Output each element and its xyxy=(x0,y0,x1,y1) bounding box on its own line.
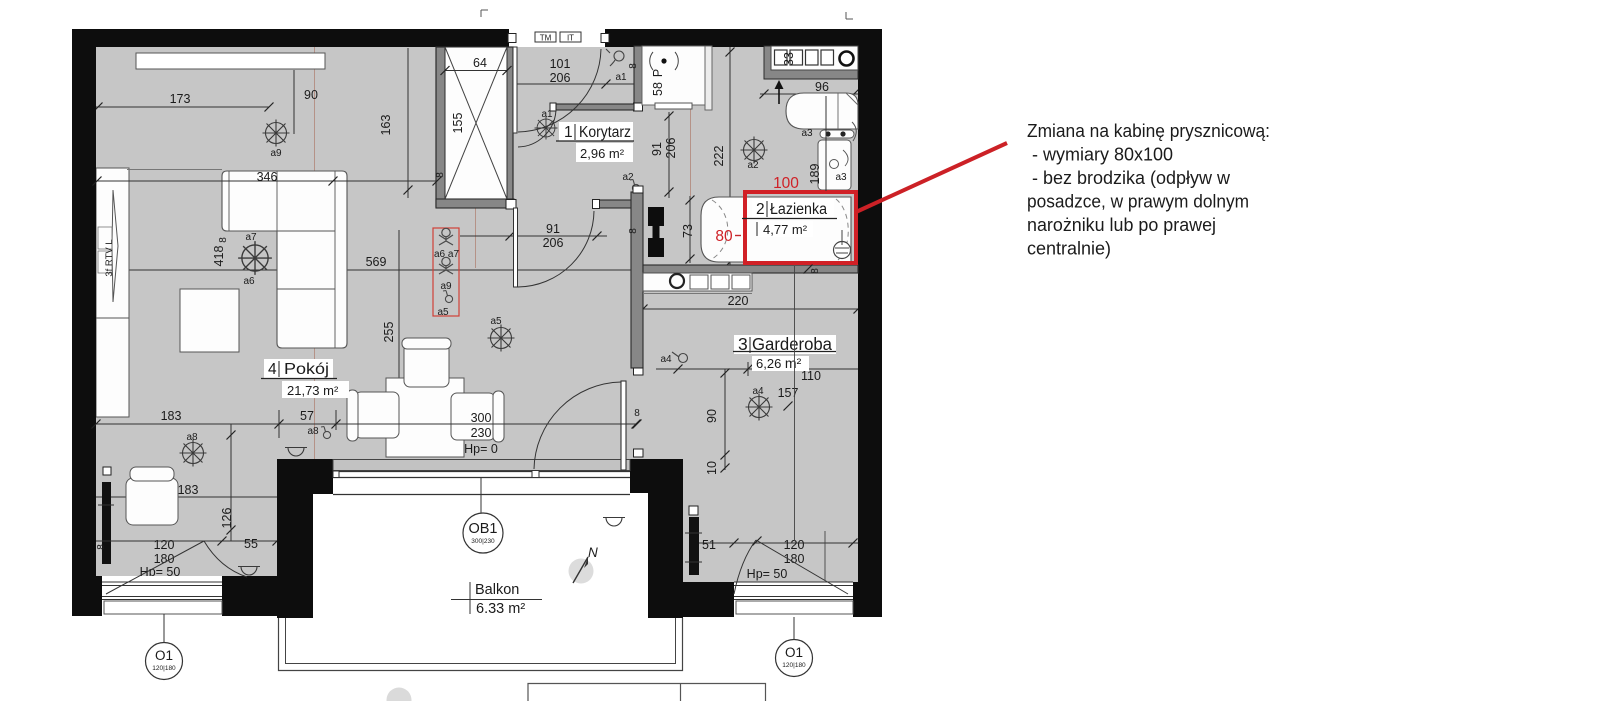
svg-text:91: 91 xyxy=(650,142,664,156)
svg-text:101: 101 xyxy=(550,57,571,71)
svg-text:206: 206 xyxy=(550,71,571,85)
svg-text:90: 90 xyxy=(304,88,318,102)
svg-text:Korytarz: Korytarz xyxy=(579,124,631,141)
svg-text:126: 126 xyxy=(220,508,234,529)
svg-text:a5: a5 xyxy=(437,307,449,318)
svg-text:O1: O1 xyxy=(785,645,803,660)
svg-text:a4: a4 xyxy=(660,354,672,365)
svg-text:2: 2 xyxy=(756,201,765,218)
svg-text:157: 157 xyxy=(778,386,799,400)
svg-text:120|180: 120|180 xyxy=(152,665,176,672)
svg-text:8: 8 xyxy=(628,228,639,234)
svg-text:300: 300 xyxy=(471,411,492,425)
svg-text:80: 80 xyxy=(715,228,733,245)
svg-text:Łazienka: Łazienka xyxy=(770,201,827,218)
svg-text:4: 4 xyxy=(268,361,277,378)
svg-text:55: 55 xyxy=(244,537,258,551)
svg-text:a9: a9 xyxy=(440,281,452,292)
svg-text:220: 220 xyxy=(728,294,749,308)
svg-text:P: P xyxy=(651,69,665,77)
svg-text:Balkon: Balkon xyxy=(475,582,519,598)
svg-text:91: 91 xyxy=(546,222,560,236)
svg-text:OB1: OB1 xyxy=(468,521,497,537)
svg-text:58: 58 xyxy=(651,82,665,96)
svg-text:3f RTV L: 3f RTV L xyxy=(104,239,115,276)
svg-text:Pokój: Pokój xyxy=(284,361,329,378)
svg-text:120: 120 xyxy=(784,538,805,552)
svg-text:51: 51 xyxy=(702,538,716,552)
svg-text:narożniku lub po prawej: narożniku lub po prawej xyxy=(1027,215,1216,235)
svg-text:a6 a7: a6 a7 xyxy=(434,249,459,260)
svg-text:10: 10 xyxy=(705,461,719,475)
svg-text:8: 8 xyxy=(634,408,640,419)
svg-text:73: 73 xyxy=(681,224,695,238)
svg-text:8: 8 xyxy=(435,172,446,178)
svg-text:4,77 m²: 4,77 m² xyxy=(763,222,808,237)
svg-text:- wymiary 80x100: - wymiary 80x100 xyxy=(1032,145,1173,165)
svg-text:a2: a2 xyxy=(747,160,759,171)
svg-text:a3: a3 xyxy=(835,172,847,183)
svg-text:21,73 m²: 21,73 m² xyxy=(287,383,339,398)
svg-text:a4: a4 xyxy=(752,386,764,397)
svg-text:189: 189 xyxy=(808,164,822,185)
svg-text:569: 569 xyxy=(366,255,387,269)
svg-text:155: 155 xyxy=(451,113,465,134)
svg-text:346: 346 xyxy=(257,170,278,184)
svg-text:222: 222 xyxy=(712,146,726,167)
svg-text:posadzce, w prawym dolnym: posadzce, w prawym dolnym xyxy=(1027,192,1249,212)
svg-text:173: 173 xyxy=(170,92,191,106)
svg-text:a9: a9 xyxy=(270,148,282,159)
svg-text:Zmiana na kabinę prysznicową:: Zmiana na kabinę prysznicową: xyxy=(1027,121,1270,141)
svg-text:O1: O1 xyxy=(155,648,173,663)
svg-text:90: 90 xyxy=(705,409,719,423)
svg-text:a2: a2 xyxy=(622,172,634,183)
svg-text:57: 57 xyxy=(300,409,314,423)
svg-text:centralnie): centralnie) xyxy=(1027,239,1111,259)
svg-text:110: 110 xyxy=(801,369,821,383)
svg-text:64: 64 xyxy=(473,56,487,70)
svg-text:a5: a5 xyxy=(490,316,502,327)
svg-text:300|230: 300|230 xyxy=(471,538,495,545)
svg-text:8: 8 xyxy=(810,268,821,274)
svg-text:a8: a8 xyxy=(186,432,198,443)
svg-text:a3: a3 xyxy=(801,128,813,139)
svg-text:a6: a6 xyxy=(243,276,255,287)
svg-text:8: 8 xyxy=(218,237,229,243)
svg-text:N: N xyxy=(588,545,598,560)
svg-text:183: 183 xyxy=(161,409,182,423)
svg-text:33: 33 xyxy=(782,52,796,66)
svg-text:8: 8 xyxy=(96,544,107,550)
svg-text:206: 206 xyxy=(543,236,564,250)
svg-text:120|180: 120|180 xyxy=(782,662,806,669)
svg-text:2,96 m²: 2,96 m² xyxy=(580,146,625,161)
svg-text:a8: a8 xyxy=(307,426,319,437)
svg-text:a7: a7 xyxy=(245,232,257,243)
svg-text:TM: TM xyxy=(540,34,552,43)
svg-text:183: 183 xyxy=(178,483,199,497)
svg-text:Hp= 0: Hp= 0 xyxy=(464,442,498,456)
svg-text:8: 8 xyxy=(628,63,639,69)
svg-text:- bez brodzika (odpływ w: - bez brodzika (odpływ w xyxy=(1032,168,1231,188)
svg-text:IT: IT xyxy=(567,34,574,43)
svg-text:418: 418 xyxy=(212,246,226,267)
svg-text:1: 1 xyxy=(564,124,573,141)
svg-text:96: 96 xyxy=(815,80,829,94)
svg-text:206: 206 xyxy=(664,138,678,159)
svg-text:6.33 m²: 6.33 m² xyxy=(476,601,525,617)
svg-text:163: 163 xyxy=(379,115,393,136)
svg-text:a1: a1 xyxy=(615,72,627,83)
svg-text:120: 120 xyxy=(154,538,175,552)
svg-text:180: 180 xyxy=(784,552,805,566)
svg-text:255: 255 xyxy=(382,322,396,343)
svg-text:230: 230 xyxy=(471,426,492,440)
svg-text:Hp= 50: Hp= 50 xyxy=(747,567,788,581)
svg-text:100: 100 xyxy=(773,175,799,192)
